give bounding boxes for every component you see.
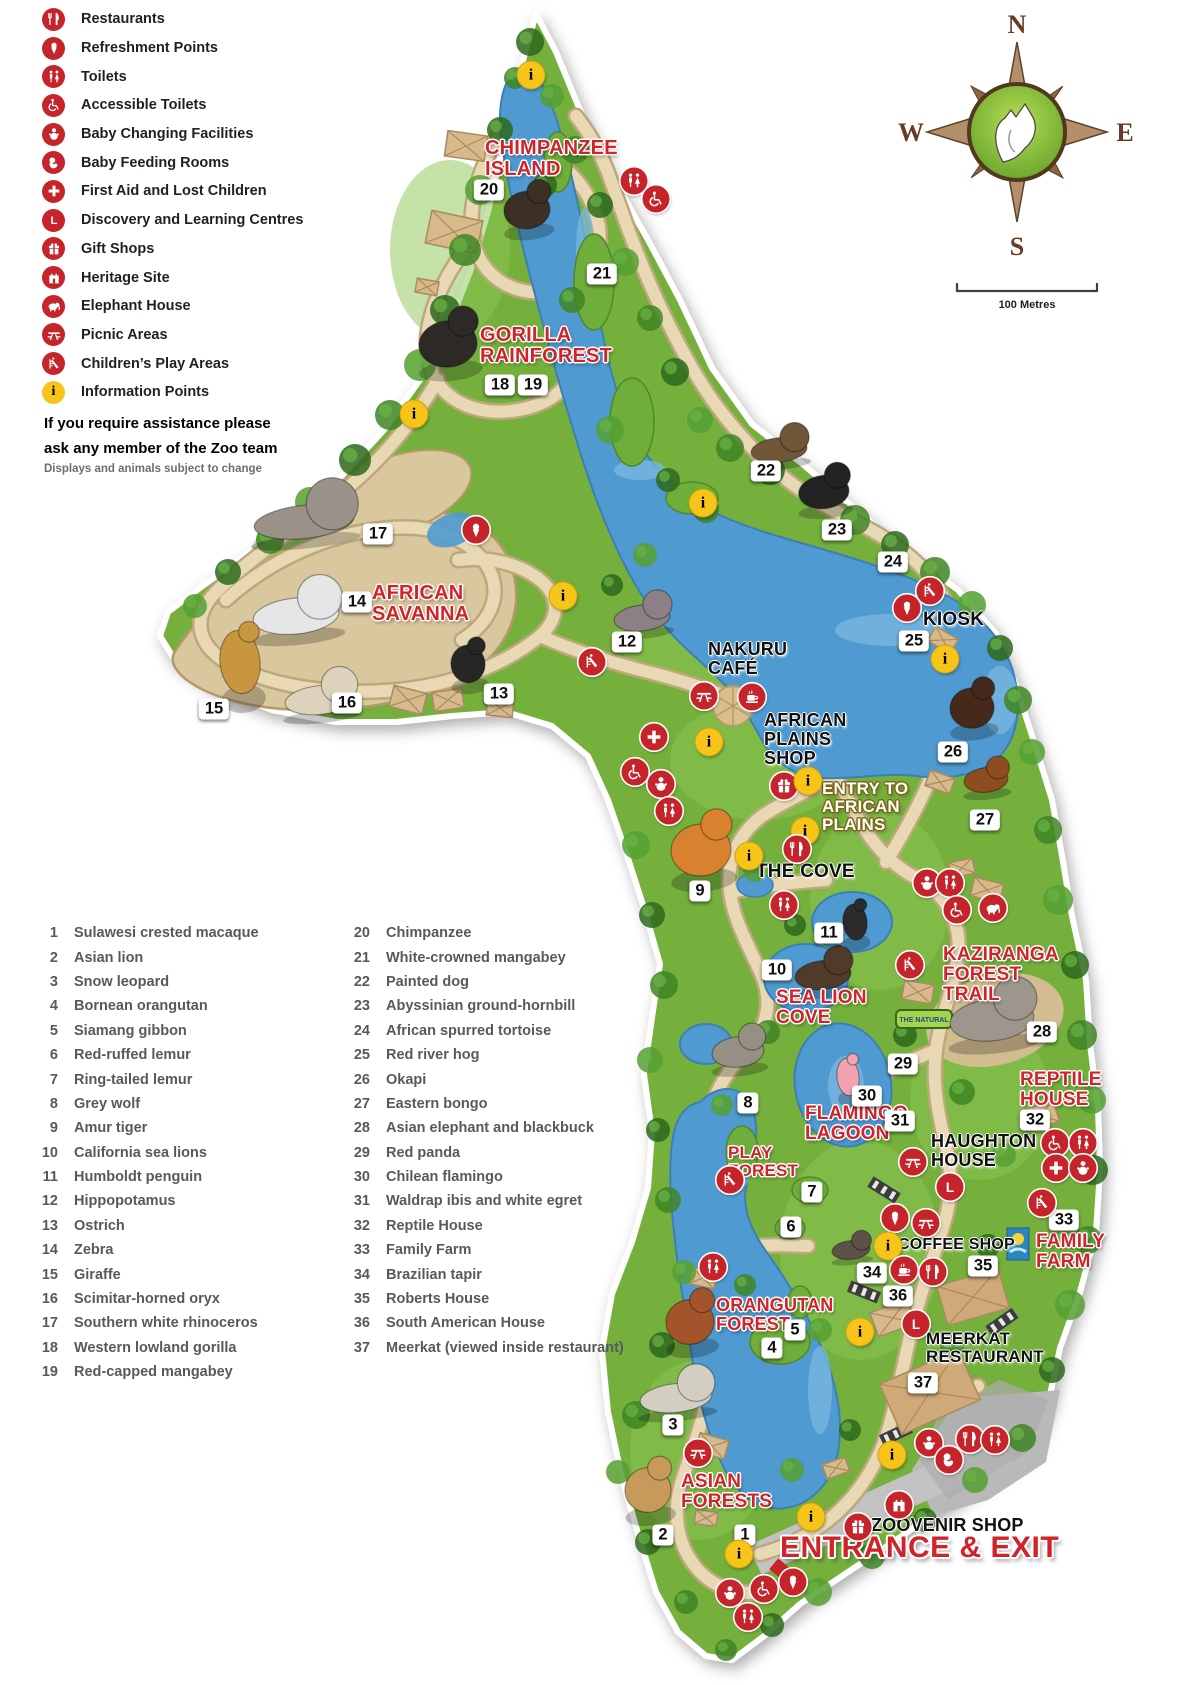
area-label-kiosk: KIOSK bbox=[923, 610, 984, 630]
map-marker-20: 20 bbox=[474, 180, 504, 201]
map-learning-icon: L bbox=[937, 1174, 964, 1201]
map-info-icon: i bbox=[726, 1541, 753, 1568]
map-restaurants-icon bbox=[784, 836, 811, 863]
map-marker-3: 3 bbox=[662, 1415, 683, 1436]
info-letter: i bbox=[806, 772, 810, 790]
map-marker-14: 14 bbox=[342, 592, 372, 613]
map-marker-2: 2 bbox=[652, 1525, 673, 1546]
map-accessible-icon bbox=[944, 897, 971, 924]
map-info-icon: i bbox=[798, 1504, 825, 1531]
map-marker-6: 6 bbox=[780, 1217, 801, 1238]
map-first-aid-icon bbox=[641, 724, 668, 751]
map-toilets-icon bbox=[735, 1604, 762, 1631]
svg-text:L: L bbox=[912, 1317, 920, 1332]
map-coffee-icon bbox=[739, 684, 766, 711]
map-marker-31: 31 bbox=[885, 1111, 915, 1132]
map-marker-13: 13 bbox=[484, 684, 514, 705]
area-label-family-farm: FAMILY FARM bbox=[1036, 1232, 1105, 1272]
map-toilets-icon bbox=[1070, 1130, 1097, 1157]
map-toilets-icon bbox=[937, 870, 964, 897]
map-marker-7: 7 bbox=[801, 1182, 822, 1203]
map-coffee-icon bbox=[891, 1257, 918, 1284]
map-info-icon: i bbox=[875, 1233, 902, 1260]
map-baby-changing-icon bbox=[717, 1580, 744, 1607]
map-elephant-house-icon bbox=[980, 895, 1007, 922]
info-letter: i bbox=[890, 1446, 894, 1464]
map-accessible-icon bbox=[622, 759, 649, 786]
map-marker-12: 12 bbox=[612, 632, 642, 653]
map-accessible-icon bbox=[1042, 1130, 1069, 1157]
area-label-haughton-house: HAUGHTON HOUSE bbox=[931, 1132, 1036, 1170]
map-play-icon bbox=[1029, 1190, 1056, 1217]
area-label-african-plains-shop: AFRICAN PLAINS SHOP bbox=[764, 711, 846, 768]
map-marker-11: 11 bbox=[814, 923, 843, 944]
map-marker-19: 19 bbox=[518, 375, 548, 396]
map-refreshment-icon bbox=[780, 1569, 807, 1596]
map-baby-changing-icon bbox=[1070, 1155, 1097, 1182]
area-label-african-savanna: AFRICAN SAVANNA bbox=[372, 583, 469, 625]
map-info-icon: i bbox=[550, 583, 577, 610]
map-info-icon: i bbox=[518, 62, 545, 89]
map-accessible-icon bbox=[751, 1576, 778, 1603]
map-gift-icon bbox=[845, 1514, 872, 1541]
map-toilets-icon bbox=[656, 798, 683, 825]
map-toilets-icon bbox=[700, 1254, 727, 1281]
map-marker-23: 23 bbox=[822, 520, 852, 541]
map-marker-17: 17 bbox=[363, 524, 393, 545]
map-picnic-icon bbox=[900, 1149, 927, 1176]
map-refreshment-icon bbox=[882, 1205, 909, 1232]
info-letter: i bbox=[412, 405, 416, 423]
map-info-icon: i bbox=[932, 646, 959, 673]
map-marker-4: 4 bbox=[761, 1338, 782, 1359]
map-marker-30: 30 bbox=[852, 1086, 882, 1107]
area-label-asian-forests: ASIAN FORESTS bbox=[681, 1472, 772, 1512]
map-play-icon bbox=[717, 1167, 744, 1194]
area-label-coffee-shop: COFFEE SHOP bbox=[898, 1237, 1015, 1254]
info-letter: i bbox=[737, 1545, 741, 1563]
map-marker-24: 24 bbox=[878, 552, 908, 573]
map-restaurants-icon bbox=[957, 1426, 984, 1453]
map-picnic-icon bbox=[913, 1210, 940, 1237]
map-marker-21: 21 bbox=[587, 264, 617, 285]
map-marker-8: 8 bbox=[737, 1093, 758, 1114]
map-info-icon: i bbox=[690, 490, 717, 517]
info-letter: i bbox=[809, 1508, 813, 1526]
area-label-entrance-exit: ENTRANCE & EXIT bbox=[780, 1532, 1059, 1564]
area-label-nakuru-cafe: NAKURU CAFÉ bbox=[708, 640, 787, 678]
map-marker-36: 36 bbox=[883, 1286, 913, 1307]
map-marker-35: 35 bbox=[968, 1256, 998, 1277]
info-letter: i bbox=[529, 66, 533, 84]
info-letter: i bbox=[943, 650, 947, 668]
map-toilets-icon bbox=[771, 892, 798, 919]
area-label-entry-african-plains: ENTRY TO AFRICAN PLAINS bbox=[822, 780, 908, 834]
map-info-icon: i bbox=[879, 1442, 906, 1469]
info-letter: i bbox=[701, 494, 705, 512]
area-label-chimpanzee-island: CHIMPANZEE ISLAND bbox=[485, 138, 618, 180]
map-picnic-icon bbox=[691, 683, 718, 710]
map-info-icon: i bbox=[401, 401, 428, 428]
map-marker-22: 22 bbox=[751, 461, 781, 482]
area-label-the-cove: THE COVE bbox=[756, 862, 855, 882]
map-marker-29: 29 bbox=[888, 1054, 918, 1075]
map-overlay: CHIMPANZEE ISLANDGORILLA RAINFORESTAFRIC… bbox=[0, 0, 1200, 1685]
map-heritage-icon bbox=[886, 1492, 913, 1519]
info-letter: i bbox=[747, 847, 751, 865]
map-toilets-icon bbox=[982, 1427, 1009, 1454]
map-marker-34: 34 bbox=[857, 1263, 887, 1284]
map-marker-28: 28 bbox=[1027, 1022, 1057, 1043]
map-marker-5: 5 bbox=[784, 1320, 805, 1341]
map-toilets-icon bbox=[621, 168, 648, 195]
map-marker-26: 26 bbox=[938, 742, 968, 763]
map-play-icon bbox=[897, 952, 924, 979]
area-label-kaziranga-forest-trail: KAZIRANGA FOREST TRAIL bbox=[943, 945, 1059, 1005]
map-info-icon: i bbox=[795, 768, 822, 795]
map-baby-feeding-icon bbox=[936, 1447, 963, 1474]
map-gift-icon bbox=[771, 773, 798, 800]
map-marker-18: 18 bbox=[485, 375, 515, 396]
map-marker-10: 10 bbox=[762, 960, 792, 981]
map-play-icon bbox=[579, 649, 606, 676]
info-letter: i bbox=[858, 1323, 862, 1341]
map-learning-icon: L bbox=[903, 1311, 930, 1338]
map-baby-changing-icon bbox=[648, 771, 675, 798]
map-refreshment-icon bbox=[894, 595, 921, 622]
area-label-meerkat-restaurant: MEERKAT RESTAURANT bbox=[926, 1330, 1044, 1366]
zoo-map-page: THE NATURAL RestaurantsRefreshment Point… bbox=[0, 0, 1200, 1685]
info-letter: i bbox=[561, 587, 565, 605]
map-info-icon: i bbox=[736, 843, 763, 870]
area-label-reptile-house: REPTILE HOUSE bbox=[1020, 1070, 1102, 1110]
map-marker-15: 15 bbox=[199, 699, 229, 720]
map-marker-33: 33 bbox=[1049, 1210, 1079, 1231]
svg-text:L: L bbox=[946, 1180, 954, 1195]
map-info-icon: i bbox=[696, 729, 723, 756]
map-marker-27: 27 bbox=[970, 810, 1000, 831]
map-picnic-icon bbox=[685, 1440, 712, 1467]
map-refreshment-icon bbox=[463, 517, 490, 544]
map-marker-16: 16 bbox=[332, 693, 362, 714]
map-info-icon: i bbox=[847, 1319, 874, 1346]
info-letter: i bbox=[707, 733, 711, 751]
map-play-icon bbox=[917, 578, 944, 605]
info-letter: i bbox=[886, 1237, 890, 1255]
area-label-orangutan-forest: ORANGUTAN FOREST bbox=[716, 1296, 833, 1334]
area-label-sea-lion-cove: SEA LION COVE bbox=[776, 988, 867, 1028]
map-first-aid-icon bbox=[1043, 1155, 1070, 1182]
map-restaurants-icon bbox=[920, 1259, 947, 1286]
map-accessible-icon bbox=[643, 186, 670, 213]
map-marker-9: 9 bbox=[689, 881, 710, 902]
area-label-gorilla-rainforest: GORILLA RAINFOREST bbox=[480, 325, 612, 367]
map-marker-32: 32 bbox=[1020, 1110, 1050, 1131]
map-marker-37: 37 bbox=[908, 1373, 938, 1394]
map-marker-25: 25 bbox=[899, 631, 929, 652]
